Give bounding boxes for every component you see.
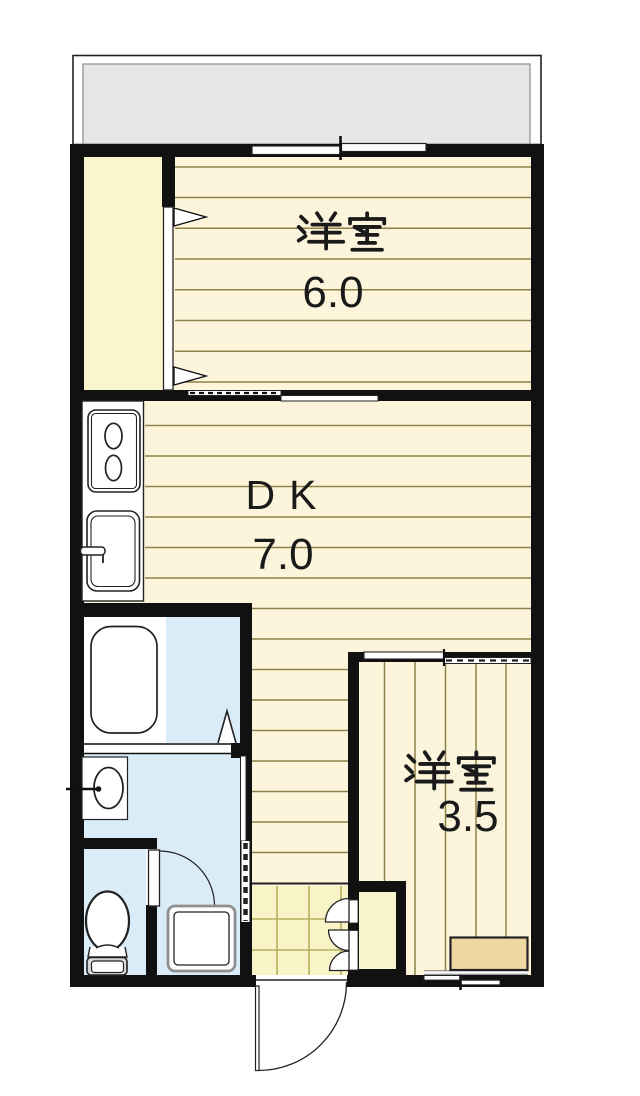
svg-text:6.0: 6.0 bbox=[302, 268, 363, 317]
svg-text:3.5: 3.5 bbox=[437, 792, 498, 841]
svg-text:7.0: 7.0 bbox=[252, 530, 313, 579]
svg-text:DK: DK bbox=[246, 472, 331, 518]
